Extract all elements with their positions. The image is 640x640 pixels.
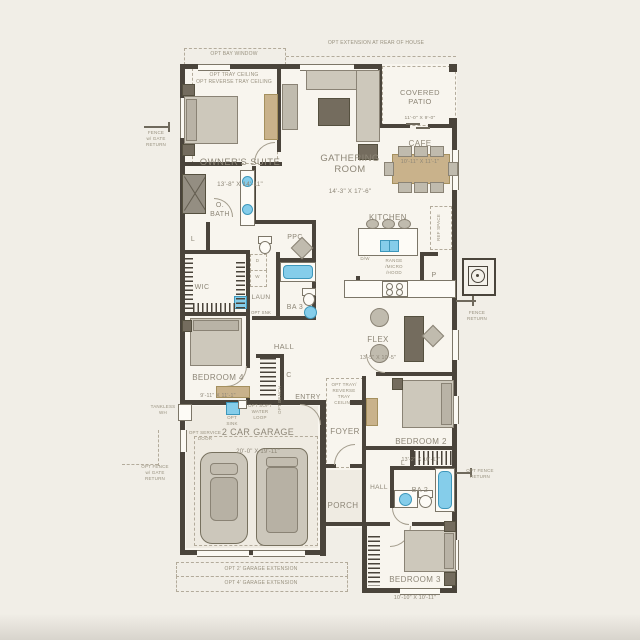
opt-rear-extension-label: OPT EXTENSION AT REAR OF HOUSE	[296, 40, 456, 47]
room-dims: 11'-0" X 9'-0"	[390, 116, 450, 122]
wall-bed3-left	[362, 522, 367, 593]
room-label-obath: O. BATH	[198, 194, 242, 227]
room-dims: 10'-10" X 10'-11"	[374, 595, 456, 601]
ba3-tub-basin	[283, 265, 313, 279]
room-name: HALL	[262, 343, 306, 352]
room-name: FLEX	[352, 335, 404, 344]
room-name: C	[282, 372, 296, 380]
bed-owners-suite	[184, 96, 238, 144]
wall-ppc-top	[252, 220, 316, 224]
room-name: ENTRY	[286, 394, 330, 402]
burner	[386, 289, 393, 296]
cafe-chair	[398, 182, 412, 193]
toilet-bowl	[259, 241, 271, 254]
room-name: CAFE	[394, 139, 446, 148]
room-label-flex: FLEX 13'-5" X 10'-5"	[352, 326, 404, 371]
nightstand	[182, 84, 195, 96]
room-label-patio: COVERED PATIO 11'-0" X 9'-0"	[390, 80, 450, 131]
room-label-owners-suite: OWNER'S SUITE 13'-8" X 14'-11"	[190, 146, 290, 199]
room-name: L	[396, 460, 410, 468]
room-dims: 20'-0" X 19'-11"	[210, 449, 306, 456]
room-name: GATHERING ROOM	[300, 153, 400, 175]
room-label-hall-lower: HALL	[364, 476, 394, 499]
dishwasher-label: D/W	[356, 256, 374, 262]
closet-label-linen-hall: L	[396, 452, 410, 477]
room-label-entry: ENTRY	[286, 386, 330, 411]
tankless-label: TANKLESS WH	[148, 404, 178, 416]
room-dims: 13'-5" X 10'-5"	[352, 355, 404, 361]
nightstand	[182, 320, 192, 332]
flex-chair	[370, 308, 389, 327]
car-roof	[266, 467, 298, 533]
opt-bay-window-label: OPT BAY WINDOW	[186, 51, 282, 58]
burner	[396, 289, 403, 296]
window-flex	[452, 330, 459, 360]
room-name: PORCH	[320, 501, 366, 510]
room-name: 2 CAR GARAGE	[210, 427, 306, 438]
wall-flex-bed2	[376, 372, 456, 376]
room-name: PPC	[280, 234, 310, 242]
room-dims: 9'-11" X 11'-1"	[174, 393, 262, 399]
wall-porch-bottom	[322, 522, 366, 526]
kitchen-sink-bowl	[389, 240, 399, 252]
patio-post-a	[449, 64, 457, 72]
garage-door-1	[197, 550, 249, 557]
wall-pantry-top	[420, 252, 438, 256]
cafe-chair	[414, 182, 428, 193]
room-label-porch: PORCH	[320, 492, 366, 520]
room-label-bedroom3: BEDROOM 3 10'-10" X 10'-11"	[374, 566, 456, 611]
floor-plan-canvas: OPT EXTENSION AT REAR OF HOUSE OPT BAY W…	[0, 0, 640, 640]
wall-bed3-top-a	[362, 522, 390, 526]
garage-door-2	[253, 550, 305, 557]
opt-4ft-garage-extension-label: OPT 4' GARAGE EXTENSION	[176, 580, 346, 587]
page-shadow	[0, 614, 640, 640]
bed-pillow	[444, 533, 454, 569]
opt-2ft-garage-extension-label: OPT 2' GARAGE EXTENSION	[176, 566, 346, 573]
window-suite-rear	[198, 64, 230, 71]
opt-tray-suite-label: OPT TRAY CEILING OPT REVERSE TRAY CEILIN…	[196, 72, 272, 86]
soft-water-label: OPT SOFT WATER LOOP	[242, 403, 278, 421]
opt-fence-gate-bottom-label: OPT FENCE w/ GATE RETURN	[132, 464, 178, 482]
room-name: FOYER	[322, 427, 368, 436]
closet-label-linen-bath: L	[186, 228, 200, 253]
ba2-tub	[435, 468, 455, 512]
bed-bedroom4	[190, 318, 242, 366]
fence-gate-top-label: FENCE w/ GATE RETURN	[134, 130, 178, 148]
property-line-v	[158, 430, 159, 466]
bed-pillow	[186, 99, 197, 141]
cafe-chair	[430, 182, 444, 193]
opt-service-door-label: OPT SERVICE DOOR	[186, 430, 224, 442]
dryer-label: D	[250, 258, 265, 264]
room-name: HALL	[364, 484, 394, 492]
fence-symbol-tick	[472, 296, 474, 306]
bed-pillow	[441, 383, 452, 425]
room-label-gathering: GATHERING ROOM 14'-3" X 17'-6"	[300, 142, 400, 206]
media-console	[282, 84, 298, 130]
dresser-owners-suite	[264, 94, 278, 140]
room-label-ba3: BA 3	[278, 296, 312, 321]
opt-fence-return-label: OPT FENCE RETURN	[462, 468, 498, 480]
wall-bed4-hall-a	[246, 316, 250, 368]
room-label-ba2: BA 2	[404, 479, 436, 504]
room-dims: 13'-8" X 14'-11"	[190, 181, 290, 188]
ba2-tub-basin	[438, 471, 452, 509]
room-dims: 10'-11" X 11'-1"	[394, 159, 446, 165]
ottoman	[318, 98, 350, 126]
sofa-section-a	[306, 70, 360, 90]
pantry-label: P	[426, 264, 442, 289]
bed-pillow	[193, 320, 239, 331]
opt-rear-extension-line	[286, 56, 456, 57]
flex-desk	[404, 316, 424, 362]
room-name: LAUN	[244, 294, 278, 302]
cafe-chair	[448, 162, 458, 176]
room-name: OWNER'S SUITE	[190, 157, 290, 168]
fence-symbol	[144, 126, 170, 128]
closetC-hanger-rod	[260, 358, 276, 398]
room-name: BA 2	[404, 487, 436, 495]
room-dims: 14'-3" X 17'-6"	[300, 188, 400, 195]
room-name: WIC	[186, 284, 218, 292]
room-name: KITCHEN	[360, 213, 416, 222]
room-name: BEDROOM 3	[374, 575, 456, 584]
nightstand	[444, 521, 456, 532]
patio-post-b	[449, 118, 457, 126]
room-name: BEDROOM 2	[384, 437, 458, 446]
wic-hanger-rod	[193, 303, 235, 312]
car-roof	[210, 477, 238, 521]
wall-wic-bottom	[180, 312, 250, 316]
room-label-cafe: CAFE 10'-11" X 11'-1"	[394, 130, 446, 175]
closet-label-entry: C	[282, 364, 296, 389]
ba3-tub	[280, 262, 316, 282]
room-label-foyer: FOYER	[322, 418, 368, 446]
ac-unit	[462, 258, 496, 296]
bath-sink	[242, 204, 253, 215]
room-name: BA 3	[278, 304, 312, 312]
room-name: L	[186, 236, 200, 244]
room-name: COVERED PATIO	[390, 89, 450, 107]
room-label-wic: WIC	[186, 276, 218, 301]
bed-bedroom2	[402, 380, 454, 428]
room-label-ppc: PPC	[280, 226, 310, 251]
range-label: RANGE /MICRO /HOOD	[378, 258, 410, 276]
room-label-hall-upper: HALL	[262, 334, 306, 361]
nightstand	[392, 378, 403, 390]
room-name: O. BATH	[198, 202, 242, 219]
ac-fan-hub	[476, 274, 479, 277]
sofa-section-b	[356, 70, 380, 142]
room-name: BEDROOM 4	[174, 373, 262, 382]
washer-label: W	[250, 274, 265, 280]
room-name: P	[426, 272, 442, 280]
range	[382, 281, 408, 297]
room-label-laundry: LAUN OPT SNK	[244, 286, 278, 323]
room-label-kitchen: KITCHEN	[360, 204, 416, 232]
fence-return-label: FENCE RETURN	[460, 310, 494, 322]
ref-space-label: REF SPACE	[436, 214, 442, 241]
room-note: OPT SNK	[244, 310, 278, 315]
